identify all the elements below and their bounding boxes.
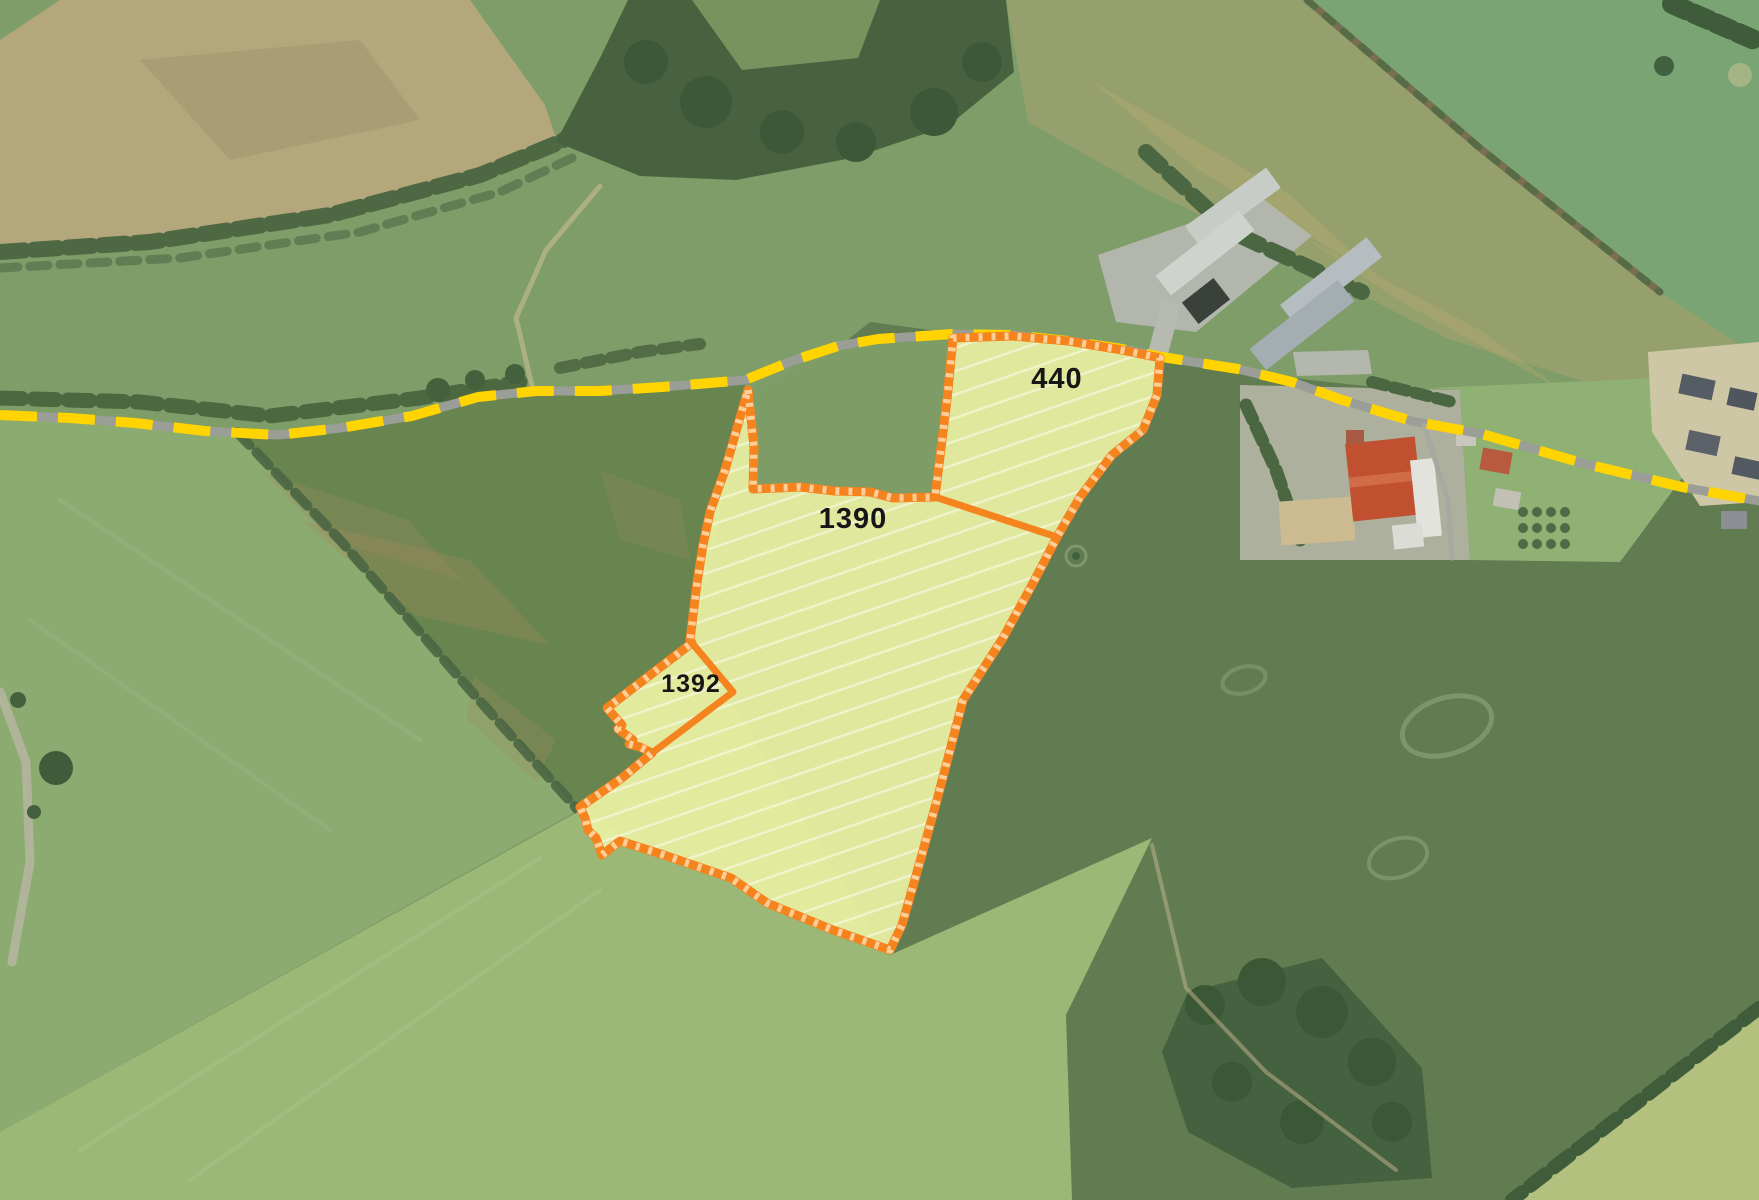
forest-blob [680,76,732,128]
tree-clump [426,378,450,402]
forest-patch-blob [1212,1062,1252,1102]
map-viewport[interactable]: 44013901392 [0,0,1759,1200]
parcel-label-440: 440 [1031,363,1082,395]
orchard-tree [1560,507,1570,517]
forest-patch-blob [1372,1102,1412,1142]
white-building [1392,522,1424,549]
orchard-tree [1546,539,1556,549]
forest-patch-blob [1348,1038,1396,1086]
forest-blob [624,40,668,84]
orchard-tree [1560,539,1570,549]
orchard-tree [1518,507,1528,517]
orchard-tree [1518,523,1528,533]
riding-arena [1279,496,1356,545]
orchard-tree [1532,523,1542,533]
orchard-tree [1546,507,1556,517]
forest-patch-blob [1296,986,1348,1038]
orchard-tree [1546,523,1556,533]
forest-blob [910,88,958,136]
forest-blob [962,42,1002,82]
house [1346,430,1364,444]
parcel-label-1390: 1390 [819,503,888,535]
orchard-tree [1560,523,1570,533]
orchard-tree [1532,539,1542,549]
forest-blob [836,122,876,162]
tree [27,805,41,819]
sand-spot [1728,63,1752,87]
bush [1072,552,1080,560]
gray-house [1721,511,1747,529]
tree [10,692,26,708]
pond-trees [39,751,73,785]
tree-clump [505,364,525,384]
forest-patch-blob [1238,958,1286,1006]
forest-patch-blob [1280,1100,1324,1144]
orchard-tree [1532,507,1542,517]
orchard-tree [1518,539,1528,549]
lone-tree [1654,56,1674,76]
map-canvas: 44013901392 [0,0,1759,1200]
parcel-label-1392: 1392 [661,670,721,698]
road-parking [1293,350,1372,376]
tree-clump [465,370,485,390]
forest-blob [760,110,804,154]
